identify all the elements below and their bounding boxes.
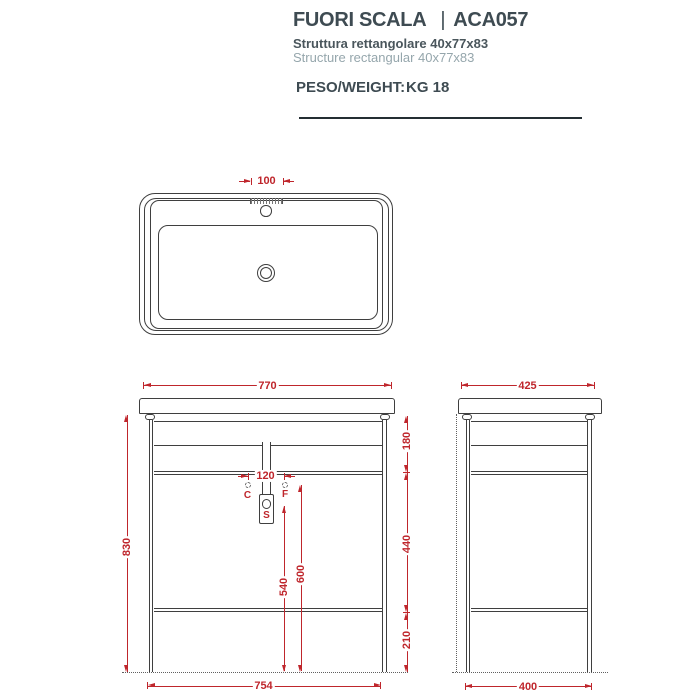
arrowhead-right-icon	[244, 179, 251, 183]
arrowhead-down-icon	[124, 665, 128, 672]
dim-label-425: 425	[516, 379, 538, 391]
arrowhead-up-icon	[404, 416, 408, 423]
dim-label-440: 440	[400, 532, 412, 554]
dim-tick	[251, 178, 252, 185]
arrowhead-left-icon	[148, 683, 155, 687]
label-siphon: S	[263, 511, 270, 521]
product-series: FUORI SCALA	[293, 9, 426, 31]
dim-line	[283, 181, 294, 182]
apron-top-line-side	[471, 421, 588, 422]
arrowhead-right-icon	[384, 383, 391, 387]
dim-label-120: 120	[254, 470, 276, 482]
arrowhead-down-icon	[404, 665, 408, 672]
label-hot: F	[282, 490, 288, 500]
weight-label: PESO/WEIGHT:	[296, 79, 405, 96]
rail-lower-front	[154, 608, 383, 613]
arrowhead-right-icon	[587, 383, 594, 387]
arrowhead-down-icon	[404, 465, 408, 472]
arrowhead-up-icon	[404, 473, 408, 480]
label-cold: C	[244, 491, 251, 501]
dim-label-100: 100	[255, 175, 277, 187]
dim-label-600: 600	[294, 563, 306, 585]
arrowhead-right-icon	[241, 474, 248, 478]
connection-f-hole	[282, 482, 289, 489]
dim-label-830: 830	[120, 536, 132, 558]
rail-lower-side	[471, 608, 588, 613]
dim-label-210: 210	[400, 629, 412, 651]
subtitle-english: Structure rectangular 40x77x83	[293, 50, 474, 65]
arrowhead-up-icon	[404, 613, 408, 620]
leg-right	[382, 420, 387, 673]
arrowhead-left-icon	[465, 684, 472, 688]
arrowhead-down-icon	[404, 605, 408, 612]
dim-label-754: 754	[252, 680, 274, 692]
title-divider: |	[440, 9, 445, 31]
apron-bottom-line-side	[471, 445, 588, 446]
dim-tick	[248, 473, 249, 480]
floor-line-front	[122, 672, 408, 673]
dim-label-540: 540	[278, 575, 290, 597]
floor-line-side	[452, 672, 608, 673]
arrowhead-left-icon	[144, 383, 151, 387]
dim-label-770: 770	[256, 379, 278, 391]
leg-right-side	[587, 420, 592, 673]
dim-line	[284, 476, 295, 477]
washbasin-side	[458, 398, 602, 414]
arrowhead-right-icon	[374, 683, 381, 687]
drain-pipe	[262, 442, 271, 495]
arrowhead-down-icon	[298, 665, 302, 672]
arrowhead-left-icon	[461, 383, 468, 387]
leg-left	[149, 420, 154, 673]
page-title: FUORI SCALA|ACA057	[293, 9, 528, 32]
apron-top-line	[154, 421, 383, 422]
arrowhead-down-icon	[282, 665, 286, 672]
header-rule	[299, 117, 582, 119]
dim-label-400: 400	[517, 680, 539, 692]
arrowhead-right-icon	[585, 684, 592, 688]
tap-platform-hatch	[250, 198, 283, 204]
drain-hole-inner	[260, 267, 272, 279]
arrowhead-up-icon	[298, 485, 302, 492]
spec-sheet: FUORI SCALA|ACA057 Struttura rettangolar…	[0, 0, 700, 700]
siphon-circle	[262, 499, 272, 509]
washbasin-front	[139, 398, 395, 414]
arrowhead-up-icon	[282, 506, 286, 513]
arrowhead-up-icon	[124, 415, 128, 422]
connection-c-hole	[245, 482, 252, 489]
weight-value: KG 18	[406, 79, 449, 96]
dim-label-180: 180	[400, 429, 412, 451]
subtitle-italian: Struttura rettangolare 40x77x83	[293, 36, 488, 51]
product-code: ACA057	[453, 9, 528, 31]
faucet-hole	[260, 205, 272, 217]
rail-upper-side	[471, 471, 588, 476]
leg-left-side	[466, 420, 471, 673]
depth-projection-line	[456, 414, 457, 672]
